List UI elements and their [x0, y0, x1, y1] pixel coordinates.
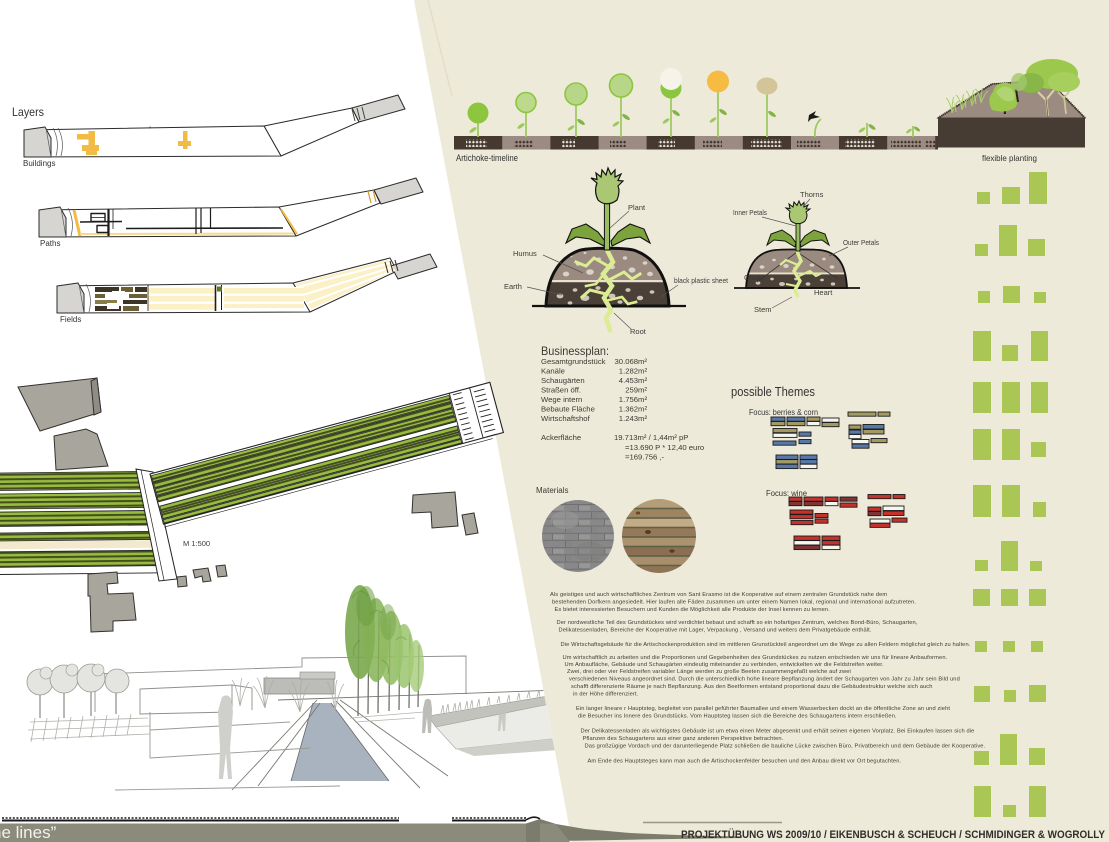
svg-text:flexible planting: flexible planting: [982, 153, 1037, 163]
svg-text:Artichoke-timeline: Artichoke-timeline: [456, 153, 518, 164]
svg-text:Stem: Stem: [754, 305, 772, 314]
svg-text:Plant: Plant: [628, 203, 646, 212]
svg-text:259m²: 259m²: [625, 386, 647, 395]
svg-text:Paths: Paths: [40, 239, 60, 248]
svg-text:black plastic sheet: black plastic sheet: [674, 276, 729, 285]
svg-text:Layers: Layers: [12, 105, 44, 119]
svg-text:Kanäle: Kanäle: [541, 367, 565, 376]
svg-text:Inner Petals: Inner Petals: [733, 208, 767, 217]
svg-text:30.068m²: 30.068m²: [615, 357, 648, 366]
svg-text:Ein langer lineare r Hauptste: Ein langer lineare r Hauptsteg, begleite…: [576, 706, 950, 712]
svg-text:Materials: Materials: [536, 486, 568, 495]
svg-text:die Besucher ins Innere des: die Besucher ins Innere des Grundstücks.…: [578, 714, 897, 720]
svg-text:Ackerfläche: Ackerfläche: [541, 433, 581, 442]
svg-text:Businessplan:: Businessplan:: [541, 344, 609, 358]
svg-text:4.453m²: 4.453m²: [619, 376, 648, 385]
svg-text:schafft differenzierte Räume: schafft differenzierte Räume je nach Bep…: [571, 684, 933, 690]
svg-text:Earth: Earth: [504, 282, 522, 291]
svg-text:Choke: Choke: [744, 273, 766, 282]
svg-text:Wege intern: Wege intern: [541, 395, 582, 404]
svg-text:Zwei, drei oder vier Feldstr: Zwei, drei oder vier Feldstreifen variab…: [567, 669, 851, 675]
svg-text:Bebaute Fläche: Bebaute Fläche: [541, 405, 595, 414]
svg-text:Heart: Heart: [814, 288, 833, 297]
svg-text:verschiedenen Niveaus angeor: verschiedenen Niveaus angeordnet sind. D…: [569, 677, 960, 683]
svg-text:Buildings: Buildings: [23, 159, 55, 168]
svg-text:Gesamtgrundstück: Gesamtgrundstück: [541, 357, 606, 366]
svg-text:Pflanzen des Schaugartens aus: Pflanzen des Schaugartens aus einer ganz…: [583, 736, 784, 742]
svg-text:Wirtschaftshof: Wirtschaftshof: [541, 414, 591, 423]
svg-text:1.243m²: 1.243m²: [619, 414, 648, 423]
svg-text:Root: Root: [630, 327, 647, 336]
svg-text:=169.756 ,-: =169.756 ,-: [625, 453, 665, 462]
svg-text:1.362m²: 1.362m²: [619, 405, 648, 414]
svg-text:possible Themes: possible Themes: [731, 385, 815, 399]
svg-text:Der Delikatessenladen als wic: Der Delikatessenladen als wichtigstes Ge…: [581, 729, 975, 735]
svg-text:Humus: Humus: [513, 249, 537, 258]
svg-text:bestehenden Dorfkern angesiede: bestehenden Dorfkern angesiedelt. Hier l…: [552, 600, 916, 606]
svg-text:PROJEKTÜBUNG WS 2009/10 / EIKE: PROJEKTÜBUNG WS 2009/10 / EIKENBUSCH & S…: [681, 828, 1106, 841]
svg-text:Die Wirtschaftsgebäude für di: Die Wirtschaftsgebäude für die Artischoc…: [561, 642, 971, 648]
svg-text:Straßen öff.: Straßen öff.: [541, 386, 581, 395]
svg-text:M 1:500: M 1:500: [183, 539, 210, 548]
svg-text:Als geistiges und auch wirtsch: Als geistiges und auch wirtschaftliches …: [550, 592, 887, 598]
svg-text:Um Anbaufläche, Gebäude und Sc: Um Anbaufläche, Gebäude und Schaugärten …: [565, 662, 884, 668]
svg-text:1.282m²: 1.282m²: [619, 367, 648, 376]
svg-text:in der Höhe differenziert.: in der Höhe differenziert.: [573, 692, 639, 698]
svg-text:Schaugärten: Schaugärten: [541, 376, 585, 385]
svg-text:=13.690 P * 12,40 euro: =13.690 P * 12,40 euro: [625, 443, 704, 452]
svg-text:Focus: berries & corn: Focus: berries & corn: [749, 408, 818, 417]
svg-text:Der nordwestliche Teil des G: Der nordwestliche Teil des Grundstückes …: [557, 620, 918, 626]
svg-text:Delikatessenladen, Bereiche de: Delikatessenladen, Bereiche der Kooperat…: [559, 628, 872, 634]
svg-text:Um wirtschaftlich zu arbeite: Um wirtschaftlich zu arbeiten und die Pr…: [563, 655, 948, 661]
svg-text:Es bietet interessierten Besuc: Es bietet interessierten Besuchern und K…: [555, 607, 831, 613]
svg-text:he lines”: he lines”: [0, 823, 57, 842]
svg-text:Outer Petals: Outer Petals: [843, 238, 879, 247]
svg-text:Fields: Fields: [60, 315, 81, 324]
svg-text:1.756m²: 1.756m²: [619, 395, 648, 404]
svg-text:Am Ende des Hauptsteges kan: Am Ende des Hauptsteges kann man auch di…: [588, 759, 902, 765]
svg-text:Das großzügige Vordach und d: Das großzügige Vordach und der darunterl…: [585, 744, 986, 750]
svg-text:Thorns: Thorns: [800, 190, 824, 199]
svg-text:19.713m² / 1,44m² pP: 19.713m² / 1,44m² pP: [614, 433, 688, 442]
